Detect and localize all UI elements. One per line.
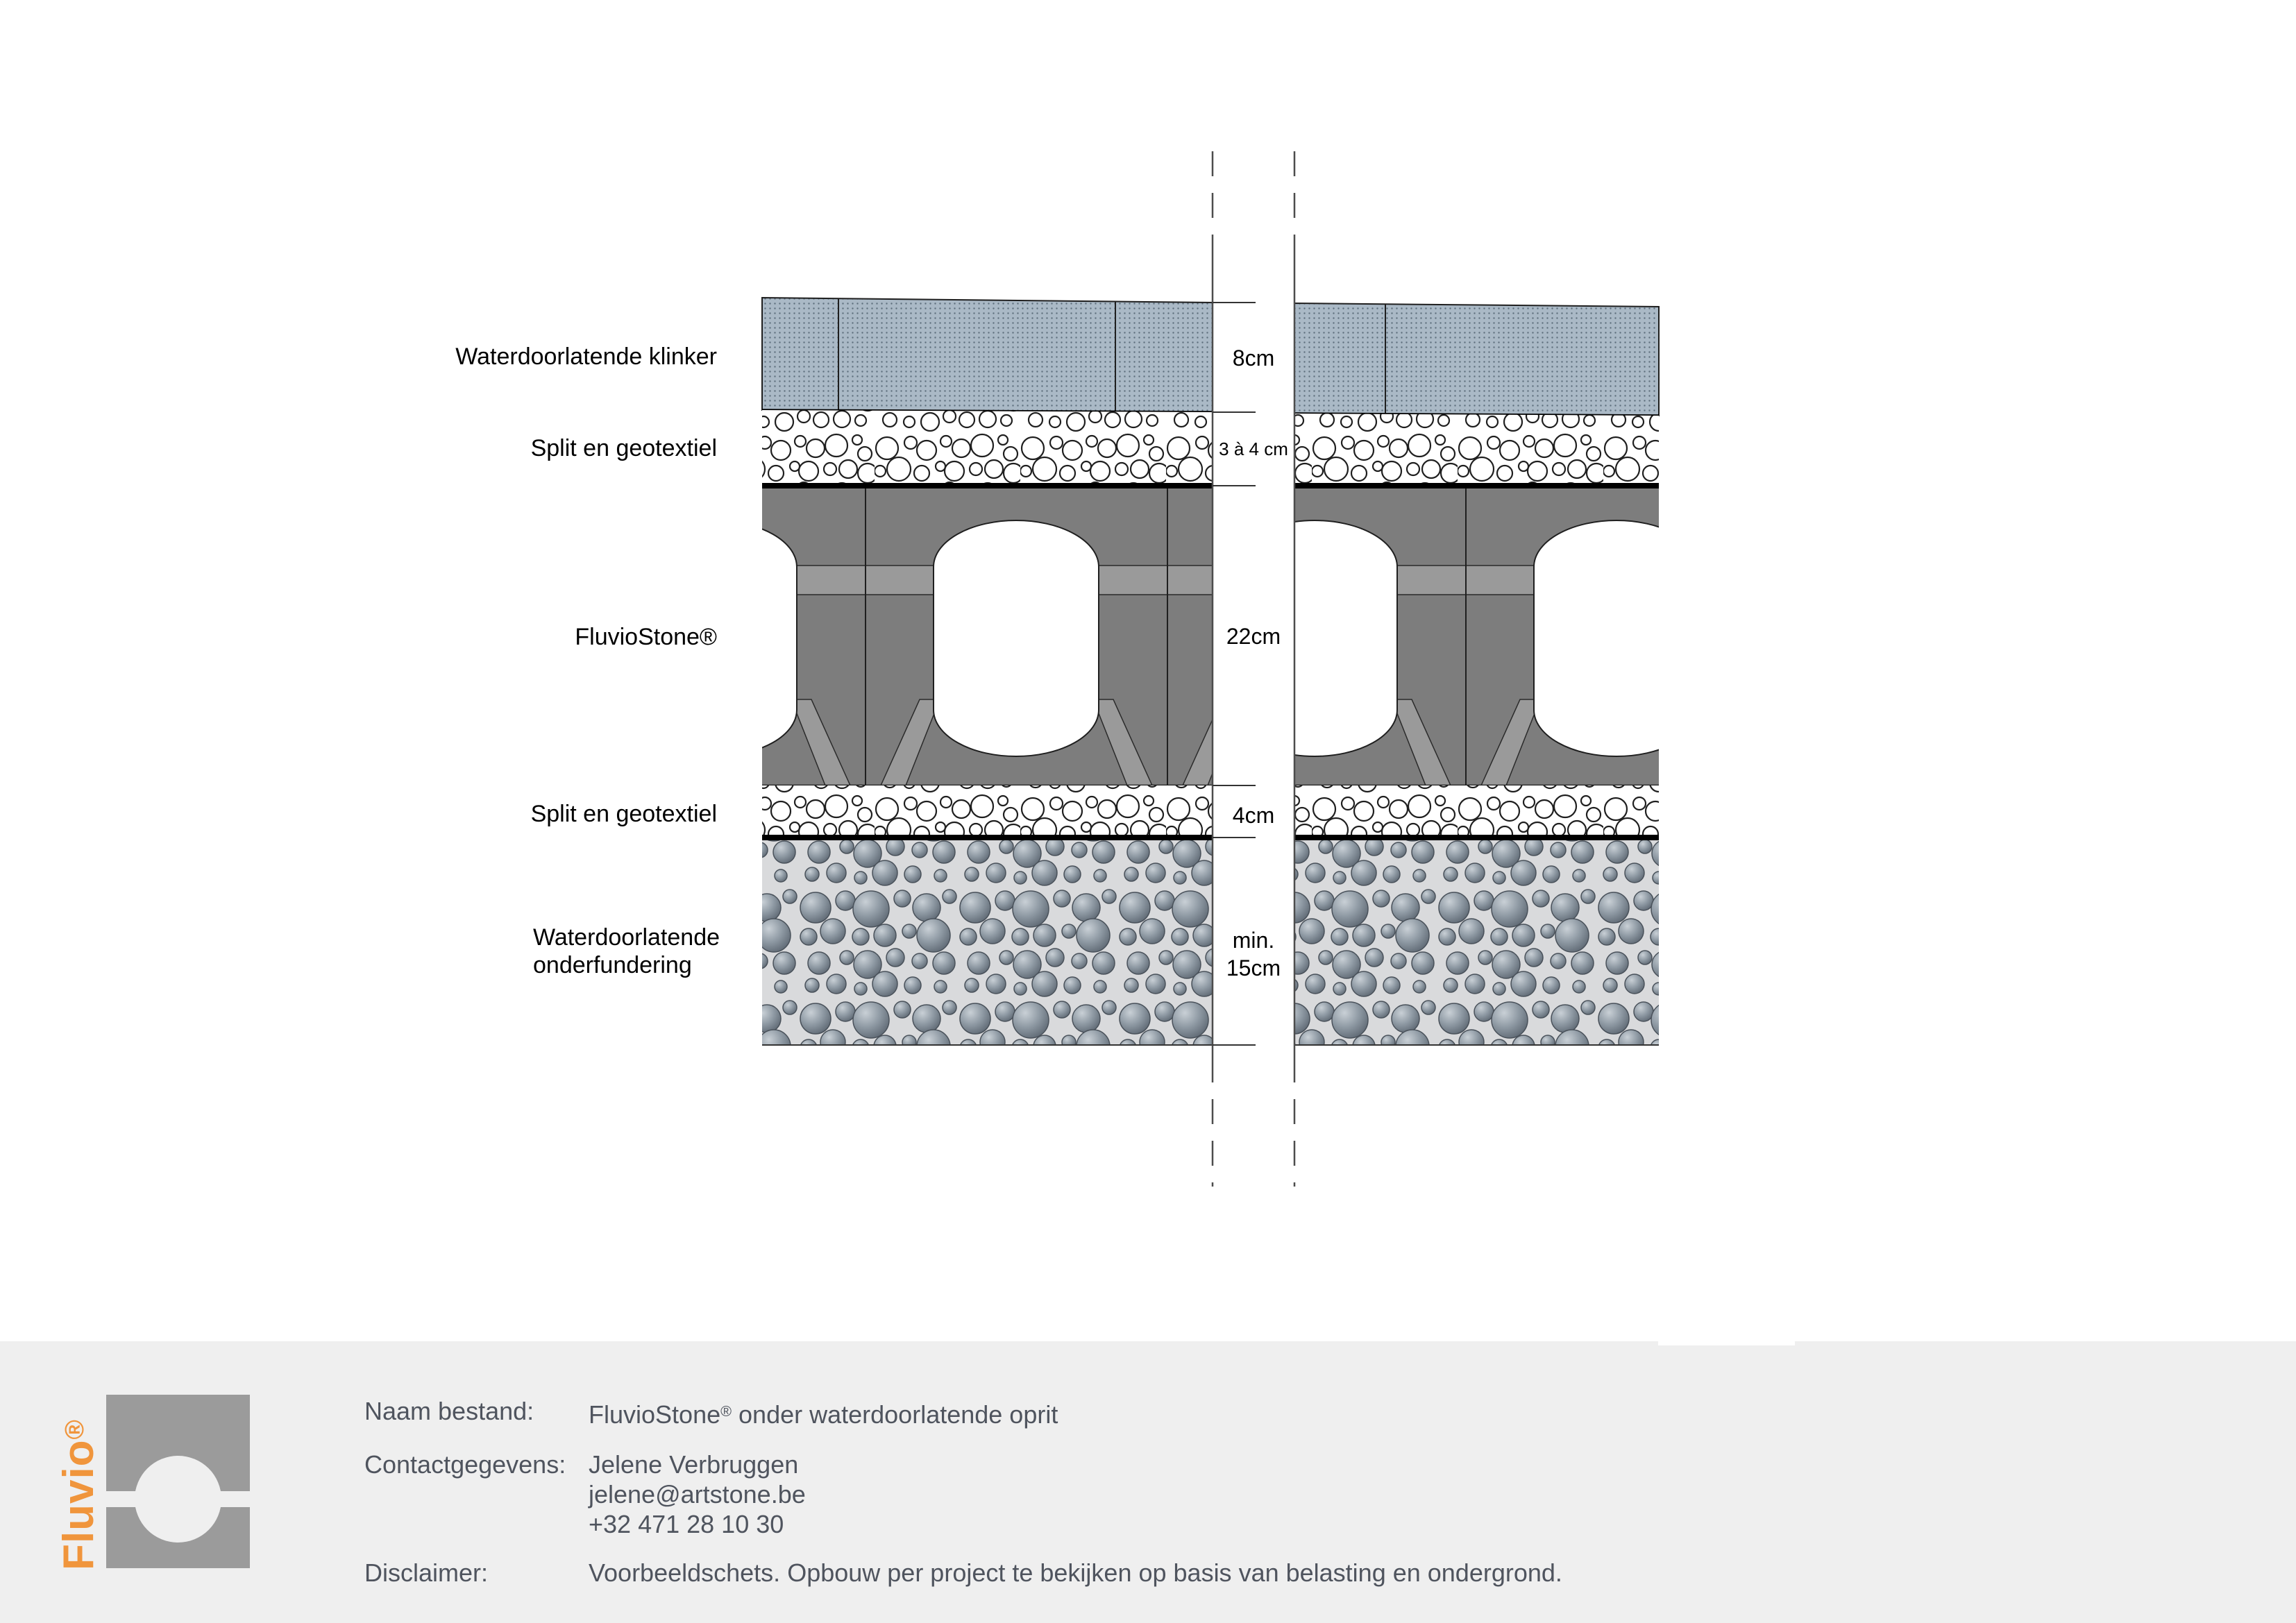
dimension-label-split-top: 3 à 4 cm [1219, 439, 1288, 459]
footer-row-contact: Contactgegevens: Jelene Verbruggen jelen… [364, 1450, 806, 1539]
file-name-value: FluvioStone® onder waterdoorlatende opri… [589, 1396, 1058, 1429]
dimension-label-klinker: 8cm [1233, 346, 1274, 371]
file-name-label: Naam bestand: [364, 1396, 589, 1429]
contact-phone: +32 471 28 10 30 [589, 1509, 806, 1539]
dimension-label-foundation-min: min. [1233, 928, 1274, 953]
logo-registered-mark: ® [60, 1419, 90, 1439]
layer-label-foundation-line1: Waterdoorlatende [533, 924, 720, 951]
dimension-label-split-bottom: 4cm [1233, 803, 1274, 828]
file-name-value-reg: ® [720, 1402, 732, 1420]
fluvio-logo-text: Fluvio® [49, 1393, 104, 1570]
geotextile-line [762, 835, 1213, 840]
stone-hole [1534, 520, 1699, 756]
layer-foundation-left [762, 840, 1213, 1045]
stone-hole [934, 520, 1099, 756]
footer-top-notch [1658, 1341, 1795, 1345]
layer-split-bottom-right [1294, 785, 1659, 835]
section-left [632, 298, 1242, 1045]
layer-fluviostone-left [632, 488, 1242, 785]
layer-fluviostone-right [1232, 488, 1699, 785]
contact-person: Jelene Verbruggen [589, 1450, 806, 1479]
layer-foundation-right [1294, 840, 1659, 1045]
contact-value: Jelene Verbruggen jelene@artstone.be +32… [589, 1450, 806, 1539]
geotextile-line [1294, 835, 1659, 840]
contact-label: Contactgegevens: [364, 1450, 589, 1539]
layer-label-foundation-line2: onderfundering [533, 952, 692, 978]
layer-label-klinker: Waterdoorlatende klinker [455, 343, 717, 370]
layer-label-split-top: Split en geotextiel [531, 435, 717, 461]
layer-split-top-right [1294, 414, 1659, 484]
layer-klinker-right [1294, 303, 1659, 416]
file-name-value-pre: FluvioStone [589, 1400, 720, 1429]
disclaimer-label: Disclaimer: [364, 1558, 589, 1588]
layer-klinker-left [762, 298, 1213, 412]
layer-label-fluviostone: FluvioStone® [575, 624, 717, 650]
footer-row-file: Naam bestand: FluvioStone® onder waterdo… [364, 1396, 1058, 1429]
file-name-value-post: onder waterdoorlatende oprit [732, 1400, 1058, 1429]
geotextile-line [1294, 483, 1659, 488]
layer-split-top-left [762, 410, 1213, 484]
footer-row-disclaimer: Disclaimer: Voorbeeldschets. Opbouw per … [364, 1558, 1562, 1588]
disclaimer-value: Voorbeeldschets. Opbouw per project te b… [589, 1558, 1562, 1588]
cut-lines [1213, 151, 1294, 1187]
section-right [1232, 303, 1699, 1045]
layer-split-bottom-left [762, 785, 1213, 835]
logo-hole [135, 1456, 221, 1543]
dimension-label-fluviostone: 22cm [1226, 624, 1281, 649]
contact-email: jelene@artstone.be [589, 1479, 806, 1509]
dimension-label-foundation-15cm: 15cm [1226, 955, 1281, 980]
logo-wordmark: Fluvio [55, 1439, 103, 1570]
layer-label-split-bottom: Split en geotextiel [531, 801, 717, 827]
fluvio-logo-icon [106, 1395, 250, 1568]
geotextile-line [762, 483, 1213, 488]
page-root: 8cm 3 à 4 cm 22cm 4cm min. 15cm Waterdoo… [0, 0, 2296, 1623]
